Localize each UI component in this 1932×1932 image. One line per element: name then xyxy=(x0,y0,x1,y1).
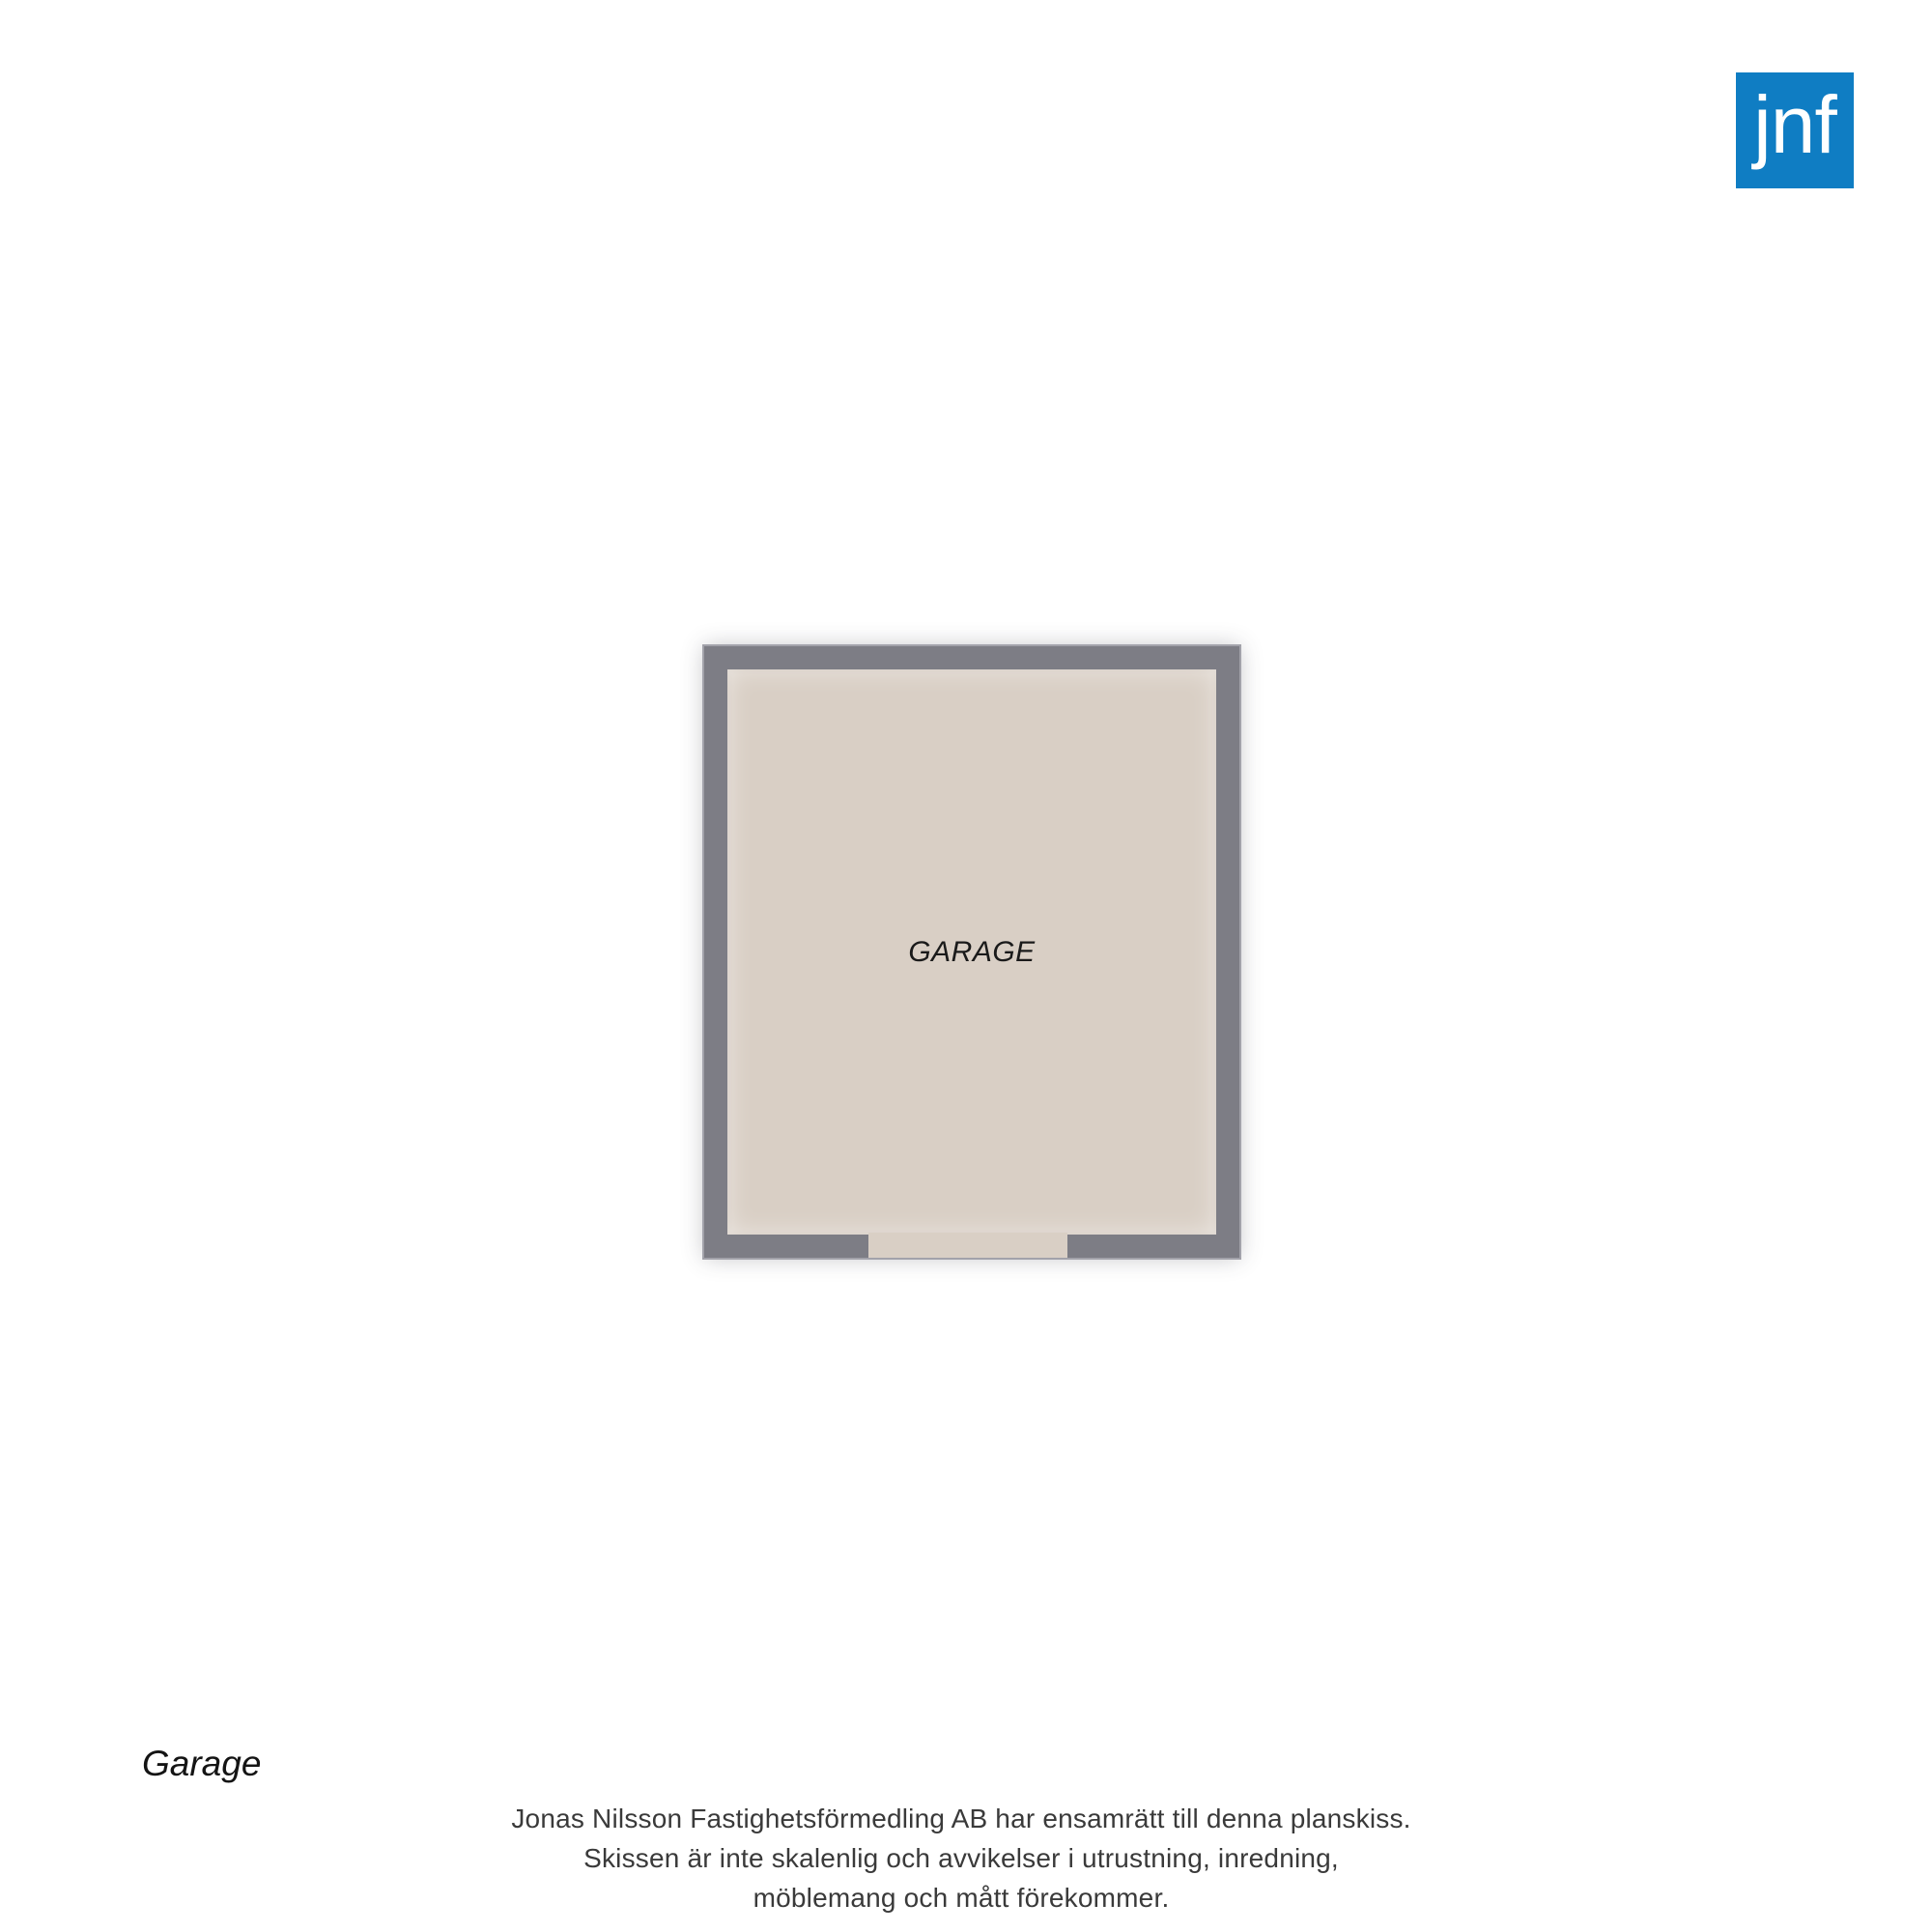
disclaimer: Jonas Nilsson Fastighetsförmedling AB ha… xyxy=(0,1799,1922,1918)
disclaimer-line-1: Jonas Nilsson Fastighetsförmedling AB ha… xyxy=(0,1799,1922,1838)
room-label-garage: GARAGE xyxy=(908,936,1035,969)
room-label-container: GARAGE xyxy=(727,669,1216,1235)
jnf-logo-text: jnf xyxy=(1753,84,1836,165)
floor-name-label: Garage xyxy=(142,1744,261,1784)
disclaimer-line-3: möblemang och mått förekommer. xyxy=(0,1878,1922,1918)
disclaimer-line-2: Skissen är inte skalenlig och avvikelser… xyxy=(0,1838,1922,1878)
jnf-logo: jnf xyxy=(1736,72,1854,188)
floorplan-garage: GARAGE xyxy=(704,646,1239,1258)
garage-door-opening xyxy=(868,1233,1067,1258)
